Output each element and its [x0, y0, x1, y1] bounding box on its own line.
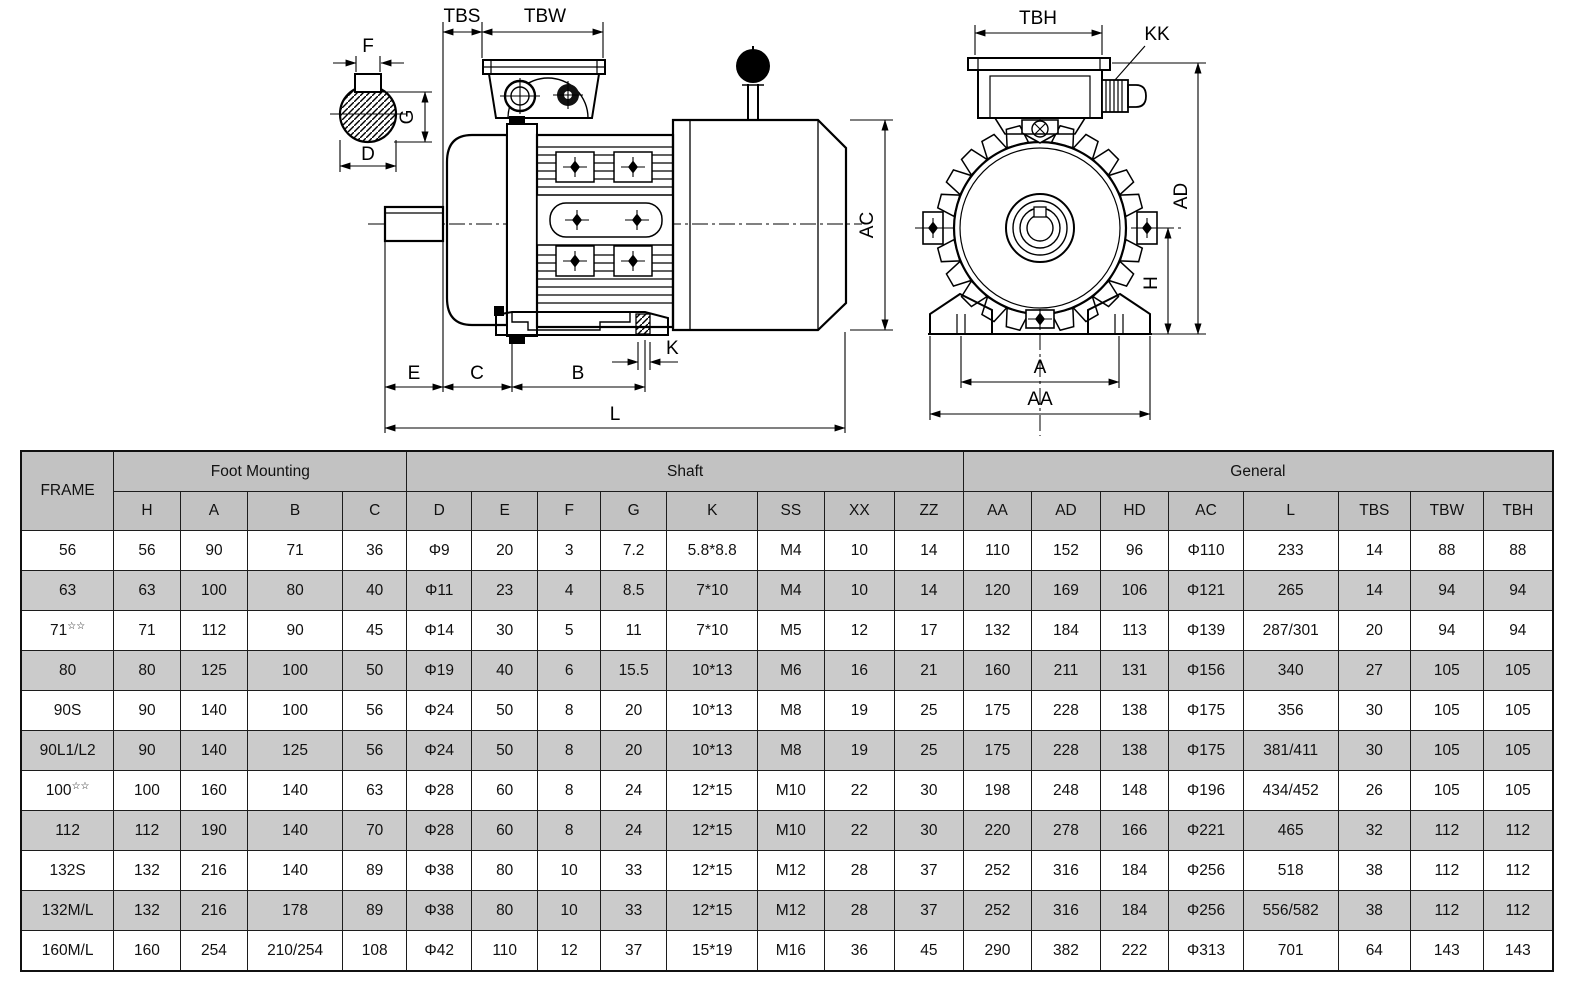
group-header-general: General — [963, 451, 1553, 492]
value-cell: 40 — [342, 571, 407, 611]
value-cell: 112 — [1483, 811, 1553, 851]
value-cell: 60 — [471, 771, 538, 811]
dim-label-l: L — [610, 404, 621, 425]
dim-label-tbs: TBS — [444, 6, 481, 27]
col-header-ac: AC — [1169, 492, 1244, 531]
value-cell: 105 — [1483, 651, 1553, 691]
value-cell: 40 — [471, 651, 538, 691]
value-cell: 80 — [471, 851, 538, 891]
value-cell: 140 — [180, 691, 248, 731]
value-cell: 166 — [1100, 811, 1169, 851]
dim-label-a: A — [1034, 357, 1047, 378]
value-cell: 71 — [114, 611, 181, 651]
value-cell: 100 — [180, 571, 248, 611]
value-cell: 184 — [1100, 851, 1169, 891]
value-cell: 30 — [895, 811, 964, 851]
value-cell: 37 — [600, 931, 667, 972]
value-cell: 8 — [538, 771, 600, 811]
frame-cell: 112 — [21, 811, 114, 851]
value-cell: 254 — [180, 931, 248, 972]
value-cell: 80 — [248, 571, 343, 611]
value-cell: 38 — [1338, 891, 1411, 931]
value-cell: 110 — [471, 931, 538, 972]
table-row: 132S13221614089Φ3880103312*15M1228372523… — [21, 851, 1553, 891]
value-cell: 30 — [471, 611, 538, 651]
col-header-tbs: TBS — [1338, 492, 1411, 531]
value-cell: 11 — [600, 611, 667, 651]
frame-cell: 63 — [21, 571, 114, 611]
col-header-f: F — [538, 492, 600, 531]
motor-spec-table: FRAME Foot Mounting Shaft General HABCDE… — [20, 450, 1554, 972]
col-header-h: H — [114, 492, 181, 531]
terminal-box-side — [483, 60, 605, 118]
value-cell: 175 — [963, 731, 1032, 771]
dim-label-d: D — [361, 144, 375, 165]
col-header-hd: HD — [1100, 492, 1169, 531]
motor-shaft — [385, 207, 443, 241]
value-cell: 190 — [180, 811, 248, 851]
value-cell: 21 — [895, 651, 964, 691]
value-cell: 140 — [248, 811, 343, 851]
value-cell: Φ38 — [407, 851, 471, 891]
dim-label-aa: AA — [1027, 389, 1053, 410]
value-cell: 50 — [342, 651, 407, 691]
value-cell: M12 — [758, 891, 825, 931]
value-cell: 15*19 — [667, 931, 758, 972]
value-cell: 7.2 — [600, 531, 667, 571]
value-cell: 220 — [963, 811, 1032, 851]
value-cell: 228 — [1032, 691, 1101, 731]
value-cell: 10*13 — [667, 651, 758, 691]
value-cell: 110 — [963, 531, 1032, 571]
value-cell: 216 — [180, 891, 248, 931]
value-cell: 17 — [895, 611, 964, 651]
value-cell: 211 — [1032, 651, 1101, 691]
table-row: 100☆☆10016014063Φ286082412*15M1022301982… — [21, 771, 1553, 811]
value-cell: 25 — [895, 691, 964, 731]
value-cell: 89 — [342, 891, 407, 931]
value-cell: 112 — [1483, 891, 1553, 931]
table-row: 5656907136Φ92037.25.8*8.8M4101411015296Φ… — [21, 531, 1553, 571]
value-cell: Φ196 — [1169, 771, 1244, 811]
value-cell: 100 — [248, 651, 343, 691]
value-cell: 278 — [1032, 811, 1101, 851]
value-cell: 198 — [963, 771, 1032, 811]
value-cell: 131 — [1100, 651, 1169, 691]
value-cell: 36 — [824, 931, 895, 972]
dim-label-g: G — [397, 110, 418, 125]
col-header-g: G — [600, 492, 667, 531]
fan-cover — [673, 120, 846, 330]
value-cell: Φ175 — [1169, 691, 1244, 731]
value-cell: 105 — [1411, 771, 1484, 811]
value-cell: 30 — [1338, 731, 1411, 771]
value-cell: 105 — [1483, 771, 1553, 811]
value-cell: Φ24 — [407, 691, 471, 731]
col-header-tbh: TBH — [1483, 492, 1553, 531]
frame-cell: 90S — [21, 691, 114, 731]
value-cell: 12*15 — [667, 891, 758, 931]
col-header-e: E — [471, 492, 538, 531]
value-cell: 108 — [342, 931, 407, 972]
value-cell: 105 — [1411, 691, 1484, 731]
value-cell: 105 — [1411, 731, 1484, 771]
value-cell: 8 — [538, 731, 600, 771]
value-cell: 70 — [342, 811, 407, 851]
value-cell: 14 — [895, 571, 964, 611]
value-cell: 10*13 — [667, 731, 758, 771]
col-header-ad: AD — [1032, 492, 1101, 531]
value-cell: 112 — [1411, 851, 1484, 891]
table-row: 71☆☆711129045Φ14305117*10M51217132184113… — [21, 611, 1553, 651]
value-cell: 37 — [895, 851, 964, 891]
value-cell: 316 — [1032, 851, 1101, 891]
value-cell: 10*13 — [667, 691, 758, 731]
value-cell: 4 — [538, 571, 600, 611]
value-cell: 143 — [1483, 931, 1553, 972]
value-cell: Φ256 — [1169, 851, 1244, 891]
value-cell: 90 — [114, 731, 181, 771]
value-cell: 50 — [471, 691, 538, 731]
value-cell: 28 — [824, 891, 895, 931]
dim-label-kk: KK — [1144, 24, 1170, 45]
value-cell: 7*10 — [667, 571, 758, 611]
shaft-hub — [1006, 194, 1074, 262]
value-cell: 60 — [471, 811, 538, 851]
value-cell: 16 — [824, 651, 895, 691]
value-cell: 184 — [1032, 611, 1101, 651]
value-cell: 10 — [538, 891, 600, 931]
col-header-zz: ZZ — [895, 492, 964, 531]
value-cell: 140 — [248, 851, 343, 891]
value-cell: 148 — [1100, 771, 1169, 811]
dim-label-f: F — [362, 36, 374, 57]
value-cell: 23 — [471, 571, 538, 611]
value-cell: M8 — [758, 691, 825, 731]
value-cell: 160 — [963, 651, 1032, 691]
value-cell: 248 — [1032, 771, 1101, 811]
dim-label-e: E — [408, 363, 421, 384]
value-cell: 138 — [1100, 691, 1169, 731]
frame-header: FRAME — [21, 451, 114, 531]
value-cell: 290 — [963, 931, 1032, 972]
group-header-foot-mounting: Foot Mounting — [114, 451, 407, 492]
value-cell: 152 — [1032, 531, 1101, 571]
value-cell: Φ28 — [407, 811, 471, 851]
value-cell: 701 — [1243, 931, 1338, 972]
value-cell: 19 — [824, 691, 895, 731]
value-cell: 465 — [1243, 811, 1338, 851]
value-cell: Φ38 — [407, 891, 471, 931]
value-cell: 340 — [1243, 651, 1338, 691]
value-cell: 381/411 — [1243, 731, 1338, 771]
value-cell: 14 — [1338, 571, 1411, 611]
value-cell: M10 — [758, 811, 825, 851]
value-cell: 56 — [342, 691, 407, 731]
value-cell: 228 — [1032, 731, 1101, 771]
value-cell: 90 — [114, 691, 181, 731]
value-cell: 143 — [1411, 931, 1484, 972]
value-cell: 50 — [471, 731, 538, 771]
col-header-ss: SS — [758, 492, 825, 531]
shaft-cross-section-drawing: F G D — [330, 36, 432, 172]
value-cell: 112 — [1411, 811, 1484, 851]
value-cell: 5.8*8.8 — [667, 531, 758, 571]
value-cell: 63 — [114, 571, 181, 611]
value-cell: 178 — [248, 891, 343, 931]
frame-cell: 132S — [21, 851, 114, 891]
table-row: 808012510050Φ1940615.510*13M616211602111… — [21, 651, 1553, 691]
value-cell: 36 — [342, 531, 407, 571]
value-cell: 120 — [963, 571, 1032, 611]
value-cell: 132 — [114, 891, 181, 931]
value-cell: Φ42 — [407, 931, 471, 972]
value-cell: 184 — [1100, 891, 1169, 931]
value-cell: 90 — [180, 531, 248, 571]
value-cell: Φ11 — [407, 571, 471, 611]
value-cell: 252 — [963, 851, 1032, 891]
value-cell: 25 — [895, 731, 964, 771]
value-cell: 10 — [824, 531, 895, 571]
value-cell: Φ28 — [407, 771, 471, 811]
frame-cell: 100☆☆ — [21, 771, 114, 811]
value-cell: 12*15 — [667, 771, 758, 811]
value-cell: 45 — [342, 611, 407, 651]
value-cell: 10 — [538, 851, 600, 891]
value-cell: 265 — [1243, 571, 1338, 611]
value-cell: 80 — [471, 891, 538, 931]
value-cell: 233 — [1243, 531, 1338, 571]
value-cell: 106 — [1100, 571, 1169, 611]
dim-label-ad: AD — [1171, 183, 1192, 209]
value-cell: 356 — [1243, 691, 1338, 731]
value-cell: 20 — [600, 731, 667, 771]
value-cell: 140 — [248, 771, 343, 811]
value-cell: 88 — [1483, 531, 1553, 571]
value-cell: Φ139 — [1169, 611, 1244, 651]
value-cell: 19 — [824, 731, 895, 771]
value-cell: Φ19 — [407, 651, 471, 691]
value-cell: 382 — [1032, 931, 1101, 972]
table-row: 11211219014070Φ286082412*15M102230220278… — [21, 811, 1553, 851]
value-cell: 12 — [824, 611, 895, 651]
value-cell: 20 — [1338, 611, 1411, 651]
value-cell: 287/301 — [1243, 611, 1338, 651]
value-cell: 20 — [600, 691, 667, 731]
col-header-aa: AA — [963, 492, 1032, 531]
table-row: 132M/L13221617889Φ3880103312*15M12283725… — [21, 891, 1553, 931]
spec-table-body: 5656907136Φ92037.25.8*8.8M4101411015296Φ… — [21, 531, 1553, 972]
frame-cell: 80 — [21, 651, 114, 691]
value-cell: 175 — [963, 691, 1032, 731]
value-cell: 112 — [1411, 891, 1484, 931]
dim-label-tbw: TBW — [524, 6, 566, 27]
value-cell: 14 — [895, 531, 964, 571]
frame-cell: 71☆☆ — [21, 611, 114, 651]
value-cell: 64 — [1338, 931, 1411, 972]
value-cell: 94 — [1483, 571, 1553, 611]
value-cell: 434/452 — [1243, 771, 1338, 811]
value-cell: 7*10 — [667, 611, 758, 651]
value-cell: 112 — [180, 611, 248, 651]
value-cell: Φ221 — [1169, 811, 1244, 851]
value-cell: 28 — [824, 851, 895, 891]
value-cell: 30 — [895, 771, 964, 811]
value-cell: 38 — [1338, 851, 1411, 891]
value-cell: 12*15 — [667, 851, 758, 891]
value-cell: 94 — [1411, 611, 1484, 651]
value-cell: Φ24 — [407, 731, 471, 771]
value-cell: M6 — [758, 651, 825, 691]
value-cell: 8.5 — [600, 571, 667, 611]
col-header-l: L — [1243, 492, 1338, 531]
value-cell: Φ9 — [407, 531, 471, 571]
motor-dimension-drawings: F G D — [0, 0, 1574, 448]
value-cell: 8 — [538, 811, 600, 851]
value-cell: 3 — [538, 531, 600, 571]
dim-label-k: K — [666, 338, 679, 359]
value-cell: 112 — [114, 811, 181, 851]
value-cell: 252 — [963, 891, 1032, 931]
value-cell: 210/254 — [248, 931, 343, 972]
stator-fins — [537, 135, 673, 327]
value-cell: Φ156 — [1169, 651, 1244, 691]
col-header-k: K — [667, 492, 758, 531]
value-cell: 89 — [342, 851, 407, 891]
value-cell: Φ121 — [1169, 571, 1244, 611]
value-cell: 125 — [180, 651, 248, 691]
value-cell: 56 — [342, 731, 407, 771]
frame-cell: 132M/L — [21, 891, 114, 931]
value-cell: 222 — [1100, 931, 1169, 972]
group-header-row: FRAME Foot Mounting Shaft General — [21, 451, 1553, 492]
value-cell: M10 — [758, 771, 825, 811]
value-cell: 100 — [114, 771, 181, 811]
value-cell: M16 — [758, 931, 825, 972]
dim-label-b: B — [572, 363, 585, 384]
value-cell: 30 — [1338, 691, 1411, 731]
table-row: 63631008040Φ112348.57*10M41014120169106Φ… — [21, 571, 1553, 611]
value-cell: 63 — [342, 771, 407, 811]
value-cell: 22 — [824, 771, 895, 811]
value-cell: 556/582 — [1243, 891, 1338, 931]
value-cell: 71 — [248, 531, 343, 571]
page: F G D — [0, 0, 1574, 994]
value-cell: 169 — [1032, 571, 1101, 611]
value-cell: 12 — [538, 931, 600, 972]
value-cell: 112 — [1483, 851, 1553, 891]
value-cell: M5 — [758, 611, 825, 651]
value-cell: 125 — [248, 731, 343, 771]
value-cell: M8 — [758, 731, 825, 771]
group-header-shaft: Shaft — [407, 451, 963, 492]
value-cell: 33 — [600, 851, 667, 891]
value-cell: Φ110 — [1169, 531, 1244, 571]
value-cell: 316 — [1032, 891, 1101, 931]
value-cell: 32 — [1338, 811, 1411, 851]
value-cell: 88 — [1411, 531, 1484, 571]
value-cell: 160 — [180, 771, 248, 811]
value-cell: 94 — [1411, 571, 1484, 611]
col-header-a: A — [180, 492, 248, 531]
value-cell: Φ14 — [407, 611, 471, 651]
value-cell: M4 — [758, 571, 825, 611]
value-cell: 6 — [538, 651, 600, 691]
value-cell: 96 — [1100, 531, 1169, 571]
value-cell: 100 — [248, 691, 343, 731]
value-cell: 105 — [1411, 651, 1484, 691]
value-cell: 27 — [1338, 651, 1411, 691]
value-cell: 14 — [1338, 531, 1411, 571]
value-cell: 518 — [1243, 851, 1338, 891]
value-cell: 22 — [824, 811, 895, 851]
table-row: 160M/L160254210/254108Φ42110123715*19M16… — [21, 931, 1553, 972]
col-header-tbw: TBW — [1411, 492, 1484, 531]
value-cell: 216 — [180, 851, 248, 891]
value-cell: M12 — [758, 851, 825, 891]
dim-label-c: C — [470, 363, 484, 384]
col-header-c: C — [342, 492, 407, 531]
value-cell: 15.5 — [600, 651, 667, 691]
dim-label-h: H — [1141, 276, 1162, 290]
value-cell: Φ175 — [1169, 731, 1244, 771]
value-cell: 94 — [1483, 611, 1553, 651]
value-cell: 45 — [895, 931, 964, 972]
dim-label-tbh: TBH — [1019, 8, 1057, 29]
value-cell: 90 — [248, 611, 343, 651]
value-cell: 160 — [114, 931, 181, 972]
value-cell: 138 — [1100, 731, 1169, 771]
col-header-row: HABCDEFGKSSXXZZAAADHDACLTBSTBWTBH — [21, 492, 1553, 531]
value-cell: 113 — [1100, 611, 1169, 651]
value-cell: 132 — [963, 611, 1032, 651]
value-cell: 24 — [600, 771, 667, 811]
value-cell: 140 — [180, 731, 248, 771]
col-header-xx: XX — [824, 492, 895, 531]
value-cell: 105 — [1483, 691, 1553, 731]
table-row: 90S9014010056Φ245082010*13M8192517522813… — [21, 691, 1553, 731]
table-row: 90L1/L29014012556Φ245082010*13M819251752… — [21, 731, 1553, 771]
frame-cell: 90L1/L2 — [21, 731, 114, 771]
value-cell: 33 — [600, 891, 667, 931]
value-cell: 10 — [824, 571, 895, 611]
value-cell: 37 — [895, 891, 964, 931]
motor-side-view-drawing: TBS TBW AC K E C B L — [368, 6, 893, 433]
value-cell: 8 — [538, 691, 600, 731]
col-header-d: D — [407, 492, 471, 531]
value-cell: 80 — [114, 651, 181, 691]
value-cell: 132 — [114, 851, 181, 891]
value-cell: 56 — [114, 531, 181, 571]
cable-gland-kk — [1102, 80, 1146, 112]
value-cell: 26 — [1338, 771, 1411, 811]
value-cell: Φ313 — [1169, 931, 1244, 972]
value-cell: Φ256 — [1169, 891, 1244, 931]
value-cell: 105 — [1483, 731, 1553, 771]
value-cell: 5 — [538, 611, 600, 651]
value-cell: 20 — [471, 531, 538, 571]
frame-cell: 160M/L — [21, 931, 114, 972]
value-cell: 24 — [600, 811, 667, 851]
motor-front-view-drawing: KK TBH AD H A AA — [915, 8, 1206, 436]
dim-label-ac: AC — [857, 212, 878, 238]
frame-cell: 56 — [21, 531, 114, 571]
col-header-b: B — [248, 492, 343, 531]
lifting-eye-bolt — [736, 46, 770, 120]
value-cell: 12*15 — [667, 811, 758, 851]
value-cell: M4 — [758, 531, 825, 571]
